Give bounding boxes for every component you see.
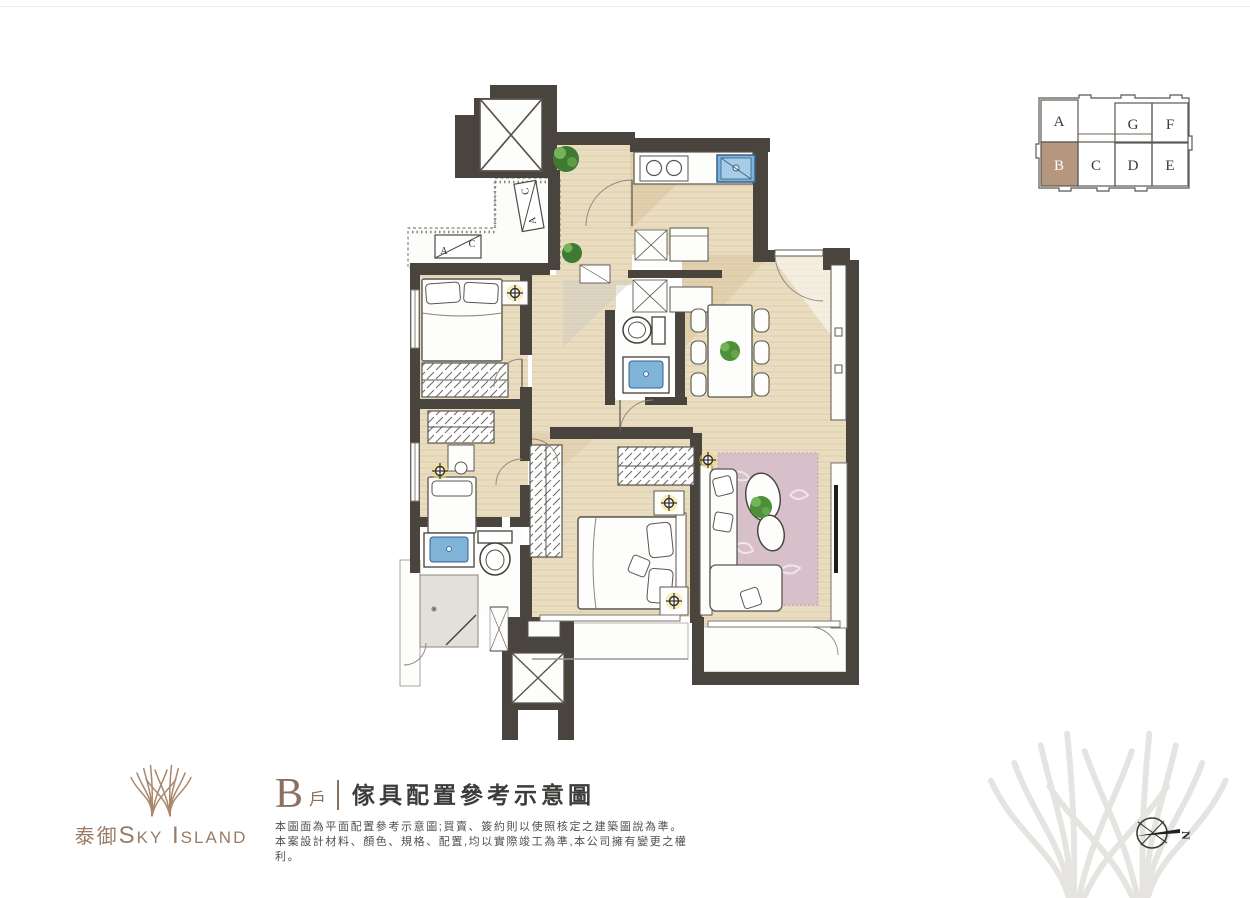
vanity-sink-icon xyxy=(424,533,474,567)
unit-suffix: 戶 xyxy=(309,785,326,812)
bed xyxy=(422,279,502,361)
wardrobe xyxy=(530,445,562,557)
brand-name-en: Sky Island xyxy=(119,822,248,849)
compass-needle xyxy=(1136,829,1180,836)
floor-plan-sheet: C A A C xyxy=(0,0,1250,898)
plant-icon xyxy=(562,243,582,263)
ac-unit-horizontal: A C xyxy=(435,235,481,258)
svg-text:C: C xyxy=(469,239,476,250)
compass: N xyxy=(1118,795,1208,865)
floor-plan: C A A C xyxy=(390,65,880,755)
closet xyxy=(618,447,694,485)
key-plan: A G F B C D E xyxy=(1033,90,1195,198)
key-unit-label-g: G xyxy=(1128,117,1139,133)
toilet-icon xyxy=(623,317,665,344)
shower xyxy=(420,575,478,647)
key-unit-label-f: F xyxy=(1166,117,1174,133)
brand-logo-mark xyxy=(111,758,211,818)
brand-logo: 泰御Sky Island xyxy=(68,758,254,850)
vanity-sink-icon xyxy=(623,357,669,393)
disclaimer-line-1: 本圖面為平面配置參考示意圖;買賣、簽約則以使照核定之建築圖說為準。 xyxy=(275,820,695,835)
key-unit-label-b: B xyxy=(1054,158,1064,174)
svg-text:A: A xyxy=(440,246,448,257)
title-divider xyxy=(337,780,339,810)
plant-icon xyxy=(720,341,740,361)
kitchen-sink-icon xyxy=(717,155,755,182)
refrigerator-icon xyxy=(635,228,708,261)
bed xyxy=(428,477,476,533)
desk xyxy=(448,445,474,474)
unit-letter: B xyxy=(275,776,303,812)
brand-logo-text: 泰御Sky Island xyxy=(68,820,254,850)
disclaimer-text: 本圖面為平面配置參考示意圖;買賣、簽約則以使照核定之建築圖說為準。 本案設計材料… xyxy=(275,820,695,865)
ac-platform: C A A C xyxy=(408,178,560,268)
key-unit-label-d: D xyxy=(1128,158,1139,174)
disclaimer-line-2: 本案設計材料、顏色、規格、配置,均以實際竣工為準,本公司擁有變更之權利。 xyxy=(275,835,695,865)
key-unit-label-a: A xyxy=(1054,114,1065,130)
stove-icon xyxy=(640,156,688,181)
compass-north-label: N xyxy=(1179,831,1193,840)
wardrobe xyxy=(428,411,494,443)
plant-icon xyxy=(553,146,579,172)
plant-icon xyxy=(750,496,772,518)
toilet-icon xyxy=(478,531,512,575)
dining-set xyxy=(691,305,769,397)
tv-wall xyxy=(831,463,847,628)
sheet-title: 傢具配置參考示意圖 xyxy=(352,776,595,812)
brand-name-cn: 泰御 xyxy=(75,826,119,848)
key-unit-label-e: E xyxy=(1165,158,1174,174)
key-unit-label-c: C xyxy=(1091,158,1101,174)
sheet-title-block: B 戶 傢具配置參考示意圖 本圖面為平面配置參考示意圖;買賣、簽約則以使照核定之… xyxy=(275,776,695,865)
